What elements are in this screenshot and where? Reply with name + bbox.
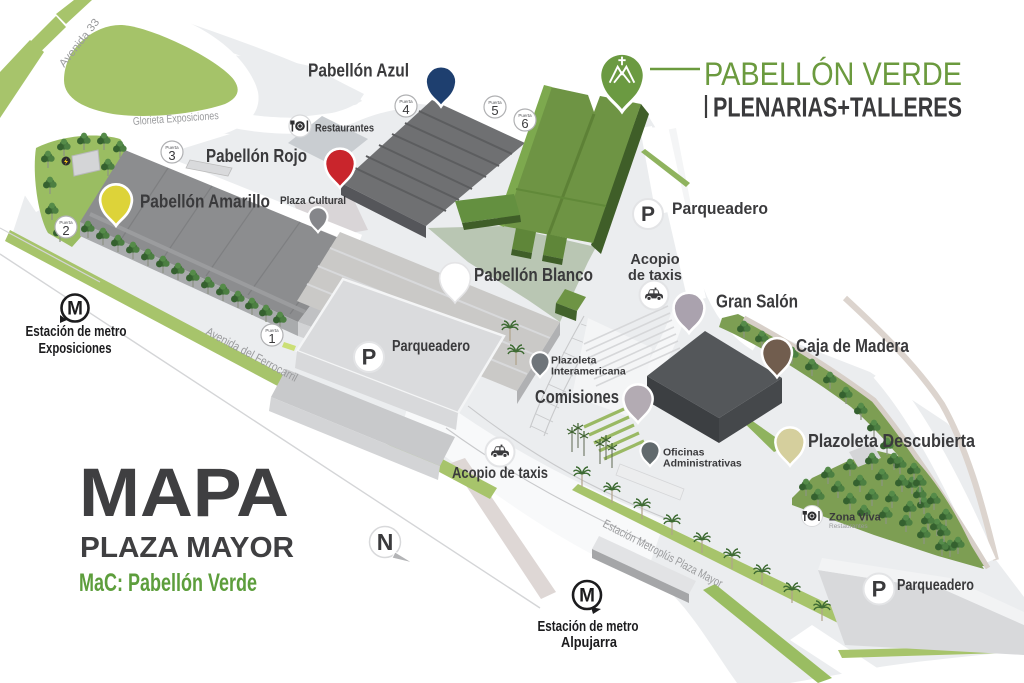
svg-text:Acopio de taxis: Acopio de taxis bbox=[452, 465, 548, 482]
svg-text:Pabellón Rojo: Pabellón Rojo bbox=[206, 146, 307, 166]
svg-text:Interamericana: Interamericana bbox=[551, 366, 626, 378]
svg-text:3: 3 bbox=[168, 148, 175, 163]
svg-text:Estación de metro: Estación de metro bbox=[26, 324, 127, 340]
svg-text:Gran Salón: Gran Salón bbox=[716, 292, 798, 312]
svg-text:Pabellón Blanco: Pabellón Blanco bbox=[474, 265, 593, 285]
svg-text:Acopio: Acopio bbox=[630, 252, 679, 268]
svg-text:Plazoleta Descubierta: Plazoleta Descubierta bbox=[808, 431, 976, 451]
svg-text:M: M bbox=[67, 299, 83, 320]
svg-text:Exposiciones: Exposiciones bbox=[39, 341, 112, 357]
svg-text:5: 5 bbox=[491, 103, 498, 118]
svg-text:Zona Viva: Zona Viva bbox=[829, 512, 882, 524]
svg-text:Alpujarra: Alpujarra bbox=[561, 635, 618, 651]
svg-text:Estación de metro: Estación de metro bbox=[538, 619, 639, 635]
svg-text:6: 6 bbox=[521, 116, 528, 131]
svg-text:Parqueadero: Parqueadero bbox=[672, 199, 768, 218]
svg-text:Restaurantes: Restaurantes bbox=[315, 123, 374, 135]
svg-text:Caja de Madera: Caja de Madera bbox=[796, 336, 910, 356]
svg-text:N: N bbox=[377, 529, 394, 555]
svg-text:Parqueadero: Parqueadero bbox=[392, 338, 470, 355]
svg-text:P: P bbox=[641, 203, 655, 226]
svg-text:de taxis: de taxis bbox=[628, 268, 682, 284]
svg-text:1: 1 bbox=[268, 331, 275, 346]
svg-text:4: 4 bbox=[402, 102, 409, 117]
svg-text:P: P bbox=[362, 345, 377, 370]
svg-text:Restaurantes: Restaurantes bbox=[829, 523, 868, 530]
svg-text:PABELLÓN VERDE: PABELLÓN VERDE bbox=[704, 56, 962, 92]
svg-text:Parqueadero: Parqueadero bbox=[897, 577, 974, 594]
svg-text:MaC: Pabellón Verde: MaC: Pabellón Verde bbox=[79, 569, 257, 597]
svg-text:Plaza Cultural: Plaza Cultural bbox=[280, 195, 346, 207]
svg-text:PLENARIAS+TALLERES: PLENARIAS+TALLERES bbox=[713, 92, 962, 123]
svg-text:P: P bbox=[872, 577, 887, 602]
svg-text:MAPA: MAPA bbox=[79, 454, 289, 531]
svg-text:2: 2 bbox=[62, 223, 69, 238]
svg-text:Administrativas: Administrativas bbox=[663, 458, 742, 470]
svg-text:M: M bbox=[579, 586, 595, 607]
svg-text:Pabellón Amarillo: Pabellón Amarillo bbox=[140, 192, 270, 212]
svg-text:PLAZA MAYOR: PLAZA MAYOR bbox=[80, 532, 294, 564]
svg-text:Comisiones: Comisiones bbox=[535, 387, 619, 407]
svg-text:Pabellón Azul: Pabellón Azul bbox=[308, 61, 409, 81]
